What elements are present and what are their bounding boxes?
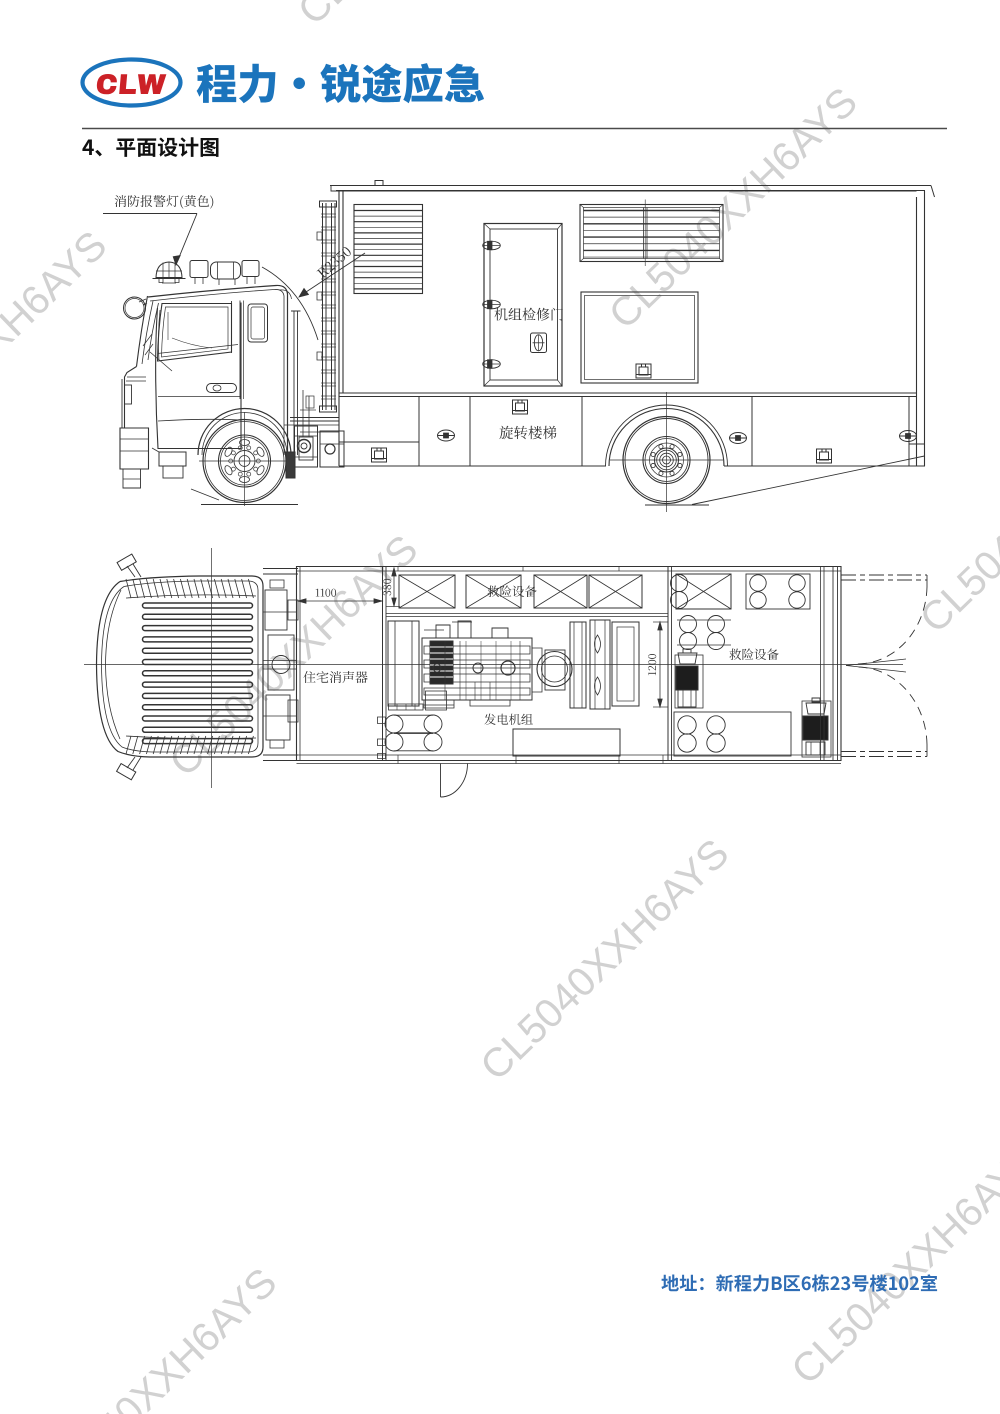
svg-text:CL5040XXH6AYS: CL5040XXH6AYS	[19, 1259, 285, 1414]
svg-text:CL5040XXH6AYS: CL5040XXH6AYS	[0, 222, 115, 481]
svg-text:CL5040XXH6AYS: CL5040XXH6AYS	[600, 78, 866, 337]
svg-text:CL5040XXH6AYS: CL5040XXH6AYS	[782, 1134, 1000, 1393]
svg-text:CL5040XXH6AYS: CL5040XXH6AYS	[471, 830, 737, 1089]
svg-text:CL5040XXH6AYS: CL5040XXH6AYS	[289, 0, 555, 34]
svg-text:CL5040XXH6AYS: CL5040XXH6AYS	[160, 526, 426, 785]
